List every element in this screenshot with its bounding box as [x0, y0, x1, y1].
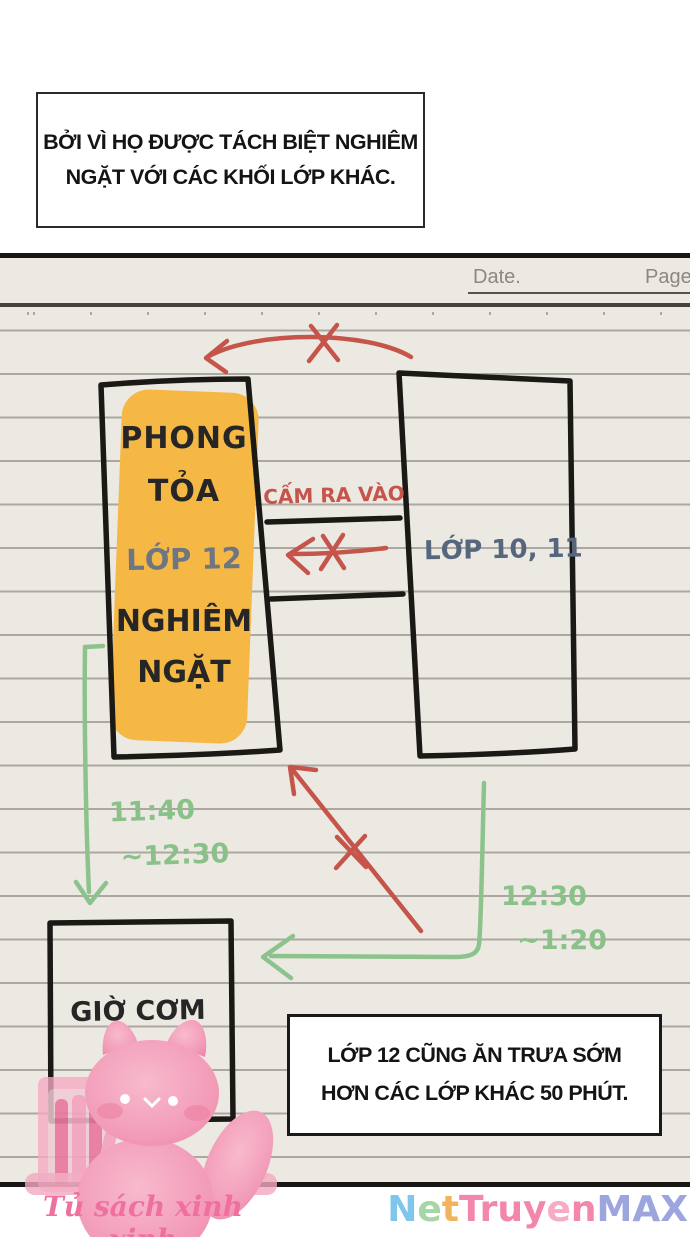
grade12-lunch-time-line1: 11:40 — [105, 794, 198, 828]
no-entry-label: CẤM RA VÀO — [263, 481, 406, 509]
other-grades-label: LỚP 10, 11 — [424, 534, 570, 567]
lunch-box-label: GIỜ CƠM — [62, 995, 215, 1029]
watermark-letter: u — [497, 1189, 523, 1230]
watermark-letter: e — [417, 1189, 441, 1230]
lockdown-label-line2: TỎA — [113, 474, 255, 509]
watermark-letter: y — [523, 1189, 546, 1230]
lockdown-label-line5: NGẶT — [113, 655, 255, 690]
lockdown-label-line1: PHONG — [113, 421, 255, 456]
watermark-letter: e — [546, 1189, 570, 1230]
watermark-letter: T — [459, 1189, 480, 1230]
publisher-logo-text: Tủ sách xinh xinh — [28, 1190, 258, 1237]
watermark-letter: X — [660, 1189, 688, 1230]
notebook-page-label: Page. — [645, 266, 690, 289]
lockdown-label-line4: NGHIÊM — [113, 604, 255, 639]
watermark-letter: N — [387, 1189, 417, 1230]
watermark-letter: n — [571, 1189, 597, 1230]
others-lunch-time-line1: 12:30 — [498, 881, 590, 912]
site-watermark: NetTruyenMAX — [387, 1189, 688, 1230]
watermark-letter: t — [442, 1189, 459, 1230]
narration-top-line2: NGẶT VỚI CÁC KHỐI LỚP KHÁC. — [66, 160, 396, 195]
others-lunch-time-line2: ~1:20 — [502, 925, 622, 956]
notebook-date-label: Date. — [473, 266, 521, 289]
watermark-letter: r — [480, 1189, 498, 1230]
narration-bottom-line2: HƠN CÁC LỚP KHÁC 50 PHÚT. — [321, 1075, 628, 1113]
lockdown-label-line3: LỚP 12 — [113, 541, 256, 577]
comic-page: BỞI VÌ HỌ ĐƯỢC TÁCH BIỆT NGHIÊM NGẶT VỚI… — [0, 0, 690, 1237]
narration-top-line1: BỞI VÌ HỌ ĐƯỢC TÁCH BIỆT NGHIÊM — [43, 125, 418, 160]
watermark-letter: A — [632, 1189, 660, 1230]
watermark-letter: M — [597, 1189, 633, 1230]
narration-box-bottom: LỚP 12 CŨNG ĂN TRƯA SỚM HƠN CÁC LỚP KHÁC… — [287, 1014, 662, 1136]
grade12-lunch-time-line2: ~12:30 — [113, 838, 236, 873]
narration-box-top: BỞI VÌ HỌ ĐƯỢC TÁCH BIỆT NGHIÊM NGẶT VỚI… — [36, 92, 425, 228]
narration-bottom-line1: LỚP 12 CŨNG ĂN TRƯA SỚM — [328, 1037, 622, 1075]
